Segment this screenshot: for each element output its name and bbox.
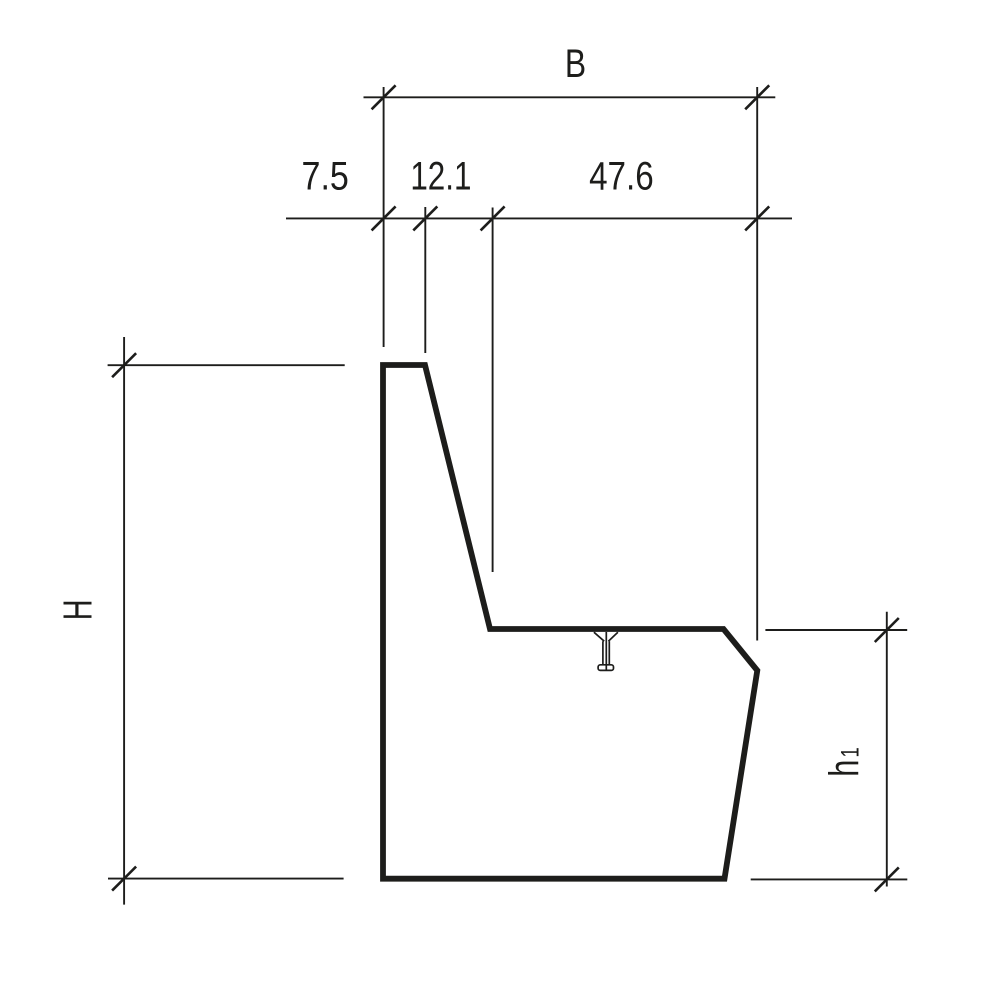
svg-text:H: H (55, 599, 101, 620)
svg-text:7.5: 7.5 (302, 153, 349, 198)
svg-text:B: B (565, 41, 586, 86)
svg-text:47.6: 47.6 (589, 154, 654, 199)
svg-text:12.1: 12.1 (410, 153, 471, 199)
